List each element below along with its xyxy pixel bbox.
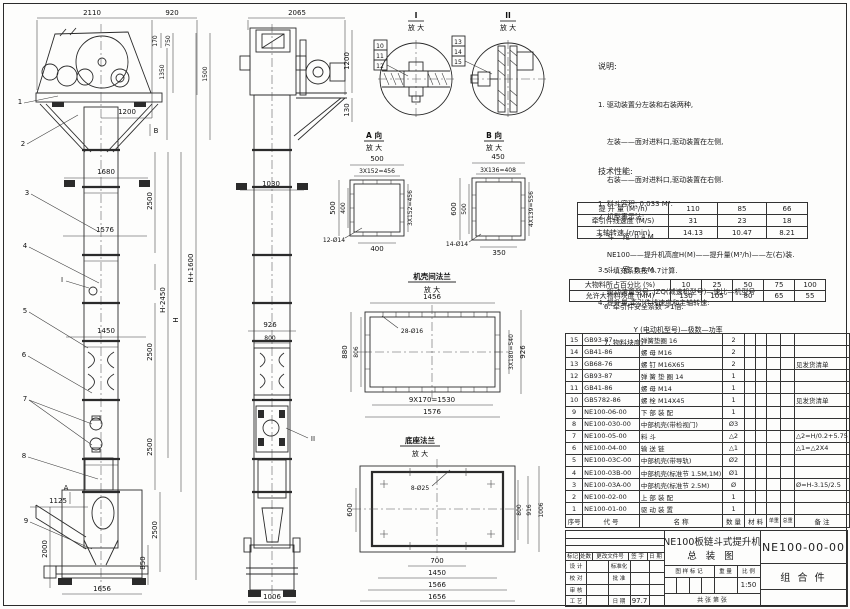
row-label: 提 升 量 (M³/h) (578, 203, 669, 215)
hole-callout: 14-Ø14 (446, 241, 468, 248)
dim-label: 1456 (423, 293, 441, 301)
tb-date-label: 日 期 (608, 595, 631, 607)
cell: 85 (718, 203, 767, 215)
detail-i-tag: 10 (376, 43, 384, 50)
scale-value: 1:50 (737, 577, 761, 594)
bom-code: GB93-87 (583, 370, 640, 382)
bom-remark (795, 406, 850, 418)
bom-row: 2NE100-02-00上 部 装 配1 (566, 491, 850, 503)
flange-title: 机壳间法兰 (413, 271, 451, 281)
cell: 65 (764, 291, 795, 302)
leader-number: 5 (23, 307, 27, 315)
dim-label: 500 (370, 155, 383, 163)
bom-header-unitweight: 单重 (767, 515, 781, 527)
bom-totalweight (781, 334, 795, 346)
dim-label: 400 (370, 245, 383, 253)
bom-header-qty: 数 量 (723, 515, 745, 527)
bom-seq: 1 (566, 503, 583, 515)
base-subtitle: 放 大 (412, 449, 428, 458)
dim-label: 880 (341, 345, 349, 358)
bom-name: 输 送 链 (639, 442, 722, 454)
bom-qty: 1 (723, 406, 745, 418)
bom-seq: 8 (566, 418, 583, 430)
bom-header-name: 名 称 (639, 515, 722, 527)
title-block: 标记 处数 更改文件号 签 字 日 期 设 计 标准化 校 对 批 准 审 核 … (565, 530, 848, 607)
dim-label: 3X152=456 (407, 190, 414, 226)
dim-label: 4X139=556 (528, 191, 535, 227)
note-line: 1. 驱动装置分左装和右装两种, (598, 99, 794, 112)
bom-remark (795, 382, 850, 394)
view-a: A 向 放 大 500 3X152=456 500 400 3X152=456 … (323, 130, 414, 253)
leader-number: 3 (25, 189, 29, 197)
leader-number: 9 (24, 517, 28, 525)
leader-number: 2 (21, 140, 25, 148)
bom-name: 弹 簧 垫 圈 14 (639, 370, 722, 382)
dim-label: 350 (492, 249, 505, 257)
bom-code: NE100-01-00 (583, 503, 640, 515)
cell: 23 (718, 215, 767, 227)
dim-label: 2065 (288, 9, 306, 17)
bom-row: 13GB68-76螺 钉 M16X652见发货清单 (566, 358, 850, 370)
cell: 10.47 (718, 227, 767, 239)
view-a-title: A 向 (366, 130, 382, 140)
dim-label: 920 (165, 9, 178, 17)
bom-unitweight (767, 334, 781, 346)
view-b: B 向 放 大 450 3X136=408 600 500 4X139=556 … (446, 130, 535, 257)
bom-remark (795, 334, 850, 346)
cell: 105 (702, 291, 733, 302)
bom-remark (795, 370, 850, 382)
drawing-views: 2110 920 170 750 1350 1500 1200 B 1680 2… (0, 0, 565, 609)
cell: 10 (671, 280, 702, 291)
table-row: 允许大物料块度 (MM) 130 105 80 65 55 (570, 291, 826, 302)
bom-remark: 见发货清单 (795, 394, 850, 406)
bom-remark: Ø=H-3.15/2.5 (795, 479, 850, 491)
bom-code: GB41-86 (583, 382, 640, 394)
bom-row: 3NE100-03A-00中部机壳(标准节 2.5M)ØØ=H-3.15/2.5 (566, 479, 850, 491)
hole-callout: 12-Ø14 (323, 237, 345, 244)
cell: 66 (767, 203, 808, 215)
detail-ii-tag: 14 (454, 49, 462, 56)
bom-row: 15GB93-87弹簧垫圈 162 (566, 334, 850, 346)
cell: 31 (669, 215, 718, 227)
bom-qty: Ø1 (723, 467, 745, 479)
dim-label: 1500 (202, 66, 209, 81)
bom-seq: 11 (566, 382, 583, 394)
dim-label: 926 (263, 321, 277, 329)
cell: 14.13 (669, 227, 718, 239)
bom-row: 10GB5782-86螺 栓 M14X451见发货清单 (566, 394, 850, 406)
dim-label: 1656 (93, 585, 111, 593)
bom-qty: 2 (723, 346, 745, 358)
bom-code: GB68-76 (583, 358, 640, 370)
dim-label: 1200 (118, 108, 136, 116)
bom-qty: Ø3 (723, 418, 745, 430)
dim-label: 1576 (423, 408, 441, 416)
detail-ii: II 放 大 13 14 15 (452, 11, 546, 118)
dim-label: H (172, 317, 180, 322)
leader-number: 6 (22, 351, 27, 359)
bom-mat (744, 334, 755, 346)
dim-label: 1576 (96, 226, 114, 234)
table-row: 大物料所占百分比 (%) 10 25 50 75 100 (570, 280, 826, 291)
notes-heading: 说明: (598, 61, 794, 74)
bom-row: 12GB93-87弹 簧 垫 圈 141 (566, 370, 850, 382)
dim-label: 600 (450, 202, 458, 215)
leader-number: 7 (23, 395, 27, 403)
row-label: 牵引件线速度 (M/S) (578, 215, 669, 227)
dim-label: 2000 (41, 540, 49, 558)
bom-qty: 2 (723, 334, 745, 346)
dim-label: 500 (461, 203, 468, 215)
table-row: 提 升 量 (M³/h) 110 85 66 (578, 203, 808, 215)
dim-label: 3X152=456 (359, 168, 395, 175)
dim-label: 800 (264, 335, 276, 342)
dim-label: H+1600 (187, 254, 195, 283)
part-type: 组 合 件 (760, 563, 848, 590)
cell: 55 (795, 291, 826, 302)
engineering-drawing-sheet: 2110 920 170 750 1350 1500 1200 B 1680 2… (0, 0, 850, 609)
bom-name: 下 部 装 配 (639, 406, 722, 418)
bom-name: 螺 栓 M14X45 (639, 394, 722, 406)
bom-remark: △1=△2X4 (795, 442, 850, 454)
bom-seq: 14 (566, 346, 583, 358)
cell: 8.21 (767, 227, 808, 239)
dim-label: 1125 (49, 497, 67, 505)
bom-seq: 6 (566, 442, 583, 454)
tb-process: 工 艺 (566, 595, 587, 607)
bom-name: 弹簧垫圈 16 (639, 334, 722, 346)
dim-label: 1680 (97, 168, 115, 176)
dim-label: 750 (165, 35, 172, 47)
view-b-subtitle: 放 大 (486, 143, 502, 152)
drawing-subtitle: 总 装 图 (687, 548, 737, 562)
bom-row: 8NE100-030-00中部机壳(带检视门)Ø3 (566, 418, 850, 430)
detail-ii-title: II (505, 11, 511, 20)
cell: 100 (795, 280, 826, 291)
bom-seq: 9 (566, 406, 583, 418)
drawing-title: NE100板链斗式提升机 (664, 534, 761, 548)
bom-qty: 1 (723, 382, 745, 394)
bom-seq: 7 (566, 430, 583, 442)
bom-seq: 13 (566, 358, 583, 370)
bom-table: 15GB93-87弹簧垫圈 162 14GB41-86螺 母 M162 13GB… (565, 333, 850, 528)
dim-label: 3X136=408 (480, 167, 516, 174)
bom-remark (795, 491, 850, 503)
dim-label: 450 (491, 153, 504, 161)
dim-label: 1450 (97, 327, 115, 335)
bom-seq: 2 (566, 491, 583, 503)
dim-label: 130 (343, 103, 351, 116)
cell: 25 (702, 280, 733, 291)
bom-row: 14GB41-86螺 母 M162 (566, 346, 850, 358)
dim-label: 2500 (151, 521, 159, 539)
bom-remark: 见发货清单 (795, 358, 850, 370)
dim-label: 916 (526, 504, 533, 516)
bom-name: 中部机壳(带检视门) (639, 418, 722, 430)
dim-label: 1200 (343, 52, 351, 70)
cell: 75 (764, 280, 795, 291)
leader-number: 4 (23, 242, 28, 250)
dim-label: H-2450 (159, 287, 167, 313)
dim-label: 926 (519, 345, 527, 359)
table-row: 牵引件线速度 (M/S) 31 23 18 (578, 215, 808, 227)
front-view-dimensions: 2110 920 170 750 1350 1500 1200 B 1680 2… (30, 9, 210, 594)
view-a-subtitle: 放 大 (366, 143, 382, 152)
dim-label: 800 (516, 504, 523, 516)
cell: 50 (733, 280, 764, 291)
detail-i: I 放 大 10 11 12 (374, 11, 454, 118)
bom-name: 料 斗 (639, 430, 722, 442)
detail-ii-subtitle: 放 大 (500, 23, 516, 32)
bom-row: 4NE100-03B-00中部机壳(标准节 1.5M,1M)Ø1 (566, 467, 850, 479)
bom-code: GB93-87 (583, 334, 640, 346)
dim-label: 2500 (146, 192, 154, 210)
bom-seq: 5 (566, 454, 583, 466)
bom-qty: 1 (723, 370, 745, 382)
bom-header-totalweight: 总重 (781, 515, 795, 527)
bom-code: NE100-03C-00 (583, 454, 640, 466)
dim-label: 2110 (83, 9, 101, 17)
bom-qty: 1 (723, 503, 745, 515)
bom-name: 中部机壳(标准节 2.5M) (639, 479, 722, 491)
dim-label: 806 (353, 346, 360, 358)
detail-i-tag: 12 (376, 63, 384, 70)
bom-row: 5NE100-03C-00中部机壳(带导轨)Ø2 (566, 454, 850, 466)
bom-seq: 4 (566, 467, 583, 479)
hole-callout: 8-Ø25 (411, 485, 430, 492)
dim-label: 2500 (146, 438, 154, 456)
bom-header-material: 材 料 (744, 515, 767, 527)
dim-label: 850 (139, 556, 147, 569)
bom-name: 上 部 装 配 (639, 491, 722, 503)
detail-i-subtitle: 放 大 (408, 23, 424, 32)
lump-size-table: 大物料所占百分比 (%) 10 25 50 75 100 允许大物料块度 (MM… (569, 279, 826, 302)
bom-row: 11GB41-86螺 母 M141 (566, 382, 850, 394)
cell: 18 (767, 215, 808, 227)
bom-name: 中部机壳(标准节 1.5M,1M) (639, 467, 722, 479)
dim-label: 500 (329, 201, 337, 214)
drawing-number: NE100-00-00 (762, 541, 845, 554)
dim-label: 2500 (146, 343, 154, 361)
dim-label: 1566 (428, 581, 446, 589)
bom-remark (795, 467, 850, 479)
detail-i-title: I (415, 11, 418, 20)
detail-i-tag: 11 (376, 53, 384, 60)
bom-name: 驱 动 装 置 (639, 503, 722, 515)
dim-label: 3X180=540 (508, 334, 515, 370)
bom-code: NE100-03A-00 (583, 479, 640, 491)
bom-qty: △2 (723, 430, 745, 442)
front-view-leaders: 1 2 3 4 5 6 7 8 9 I (18, 96, 99, 549)
bom-remark: △2=H/0.2+5.75 (795, 430, 850, 442)
bom-name: 螺 母 M14 (639, 382, 722, 394)
row-label: 主轴转速 (r/min) (578, 227, 669, 239)
bom-name: 螺 母 M16 (639, 346, 722, 358)
dim-label: 1006 (538, 502, 545, 517)
sheet-count: 共 张 第 张 (664, 593, 761, 607)
table-row: 主轴转速 (r/min) 14.13 10.47 8.21 (578, 227, 808, 239)
bom-name: 中部机壳(带导轨) (639, 454, 722, 466)
bom-name: 螺 钉 M16X65 (639, 358, 722, 370)
detail-ii-tag: 13 (454, 39, 462, 46)
detail-ii-tag: 15 (454, 59, 462, 66)
bom-header-row: 序号 代 号 名 称 数 量 材 料 单重 总重 备 注 (566, 515, 850, 527)
dim-label: 1350 (159, 64, 166, 79)
bom-code: GB5782-86 (583, 394, 640, 406)
capacity-table: 提 升 量 (M³/h) 110 85 66 牵引件线速度 (M/S) 31 2… (577, 202, 808, 239)
cell: 80 (733, 291, 764, 302)
bom-qty: 1 (723, 491, 745, 503)
bom-row: 9NE100-06-00下 部 装 配1 (566, 406, 850, 418)
dim-label: 600 (346, 503, 354, 516)
bom-seq: 12 (566, 370, 583, 382)
bom-qty: 2 (723, 358, 745, 370)
leader-number: 1 (18, 98, 22, 106)
bom-code: NE100-06-00 (583, 406, 640, 418)
row-label: 允许大物料块度 (MM) (570, 291, 671, 302)
cell: 110 (669, 203, 718, 215)
hole-callout: 28-Ø16 (401, 328, 423, 335)
bom-seq: 3 (566, 479, 583, 491)
bom-remark (795, 346, 850, 358)
section-marker-i: I (61, 276, 63, 284)
casing-flange-detail: 机壳间法兰 放 大 1456 28-Ø16 880 806 3X180=540 … (341, 271, 527, 417)
bom-qty: 1 (723, 394, 745, 406)
bom-qty: Ø2 (723, 454, 745, 466)
dim-label: 1030 (262, 180, 280, 188)
view-marker-a: A (64, 484, 69, 492)
bom-code: NE100-04-00 (583, 442, 640, 454)
bom-row: 1NE100-01-00驱 动 装 置1 (566, 503, 850, 515)
front-view-head (36, 28, 162, 152)
dim-label: 9X170=1530 (409, 396, 455, 404)
bom-code: NE100-02-00 (583, 491, 640, 503)
dim-label: 700 (430, 557, 443, 565)
dim-label: 1656 (428, 593, 446, 601)
bom-qty: △1 (723, 442, 745, 454)
section-marker-ii: II (311, 435, 315, 443)
view-marker-b: B (154, 127, 159, 135)
bom-seq: 15 (566, 334, 583, 346)
performance-heading: 技术性能: (598, 166, 710, 177)
bom-code: NE100-03B-00 (583, 467, 640, 479)
bom-row: 6NE100-04-00输 送 链△1△1=△2X4 (566, 442, 850, 454)
base-title: 底座法兰 (405, 435, 435, 445)
perf-line: 6. 牵引件安全系数 >1倍. (604, 301, 684, 313)
bom-remark (795, 418, 850, 430)
bom-header-code: 代 号 (583, 515, 640, 527)
bom-seq: 10 (566, 394, 583, 406)
base-flange-detail: 底座法兰 放 大 8-Ø25 600 800 916 1006 700 1450… (346, 435, 545, 601)
leader-number: 8 (22, 452, 26, 460)
bom-code: GB41-86 (583, 346, 640, 358)
view-b-title: B 向 (486, 130, 502, 140)
bom-code: NE100-030-00 (583, 418, 640, 430)
bom-row: 7NE100-05-00料 斗△2△2=H/0.2+5.75 (566, 430, 850, 442)
bom-header-seq: 序号 (566, 515, 583, 527)
cell: 130 (671, 291, 702, 302)
perf-line: 5. 填充系数按 0.7计算. (604, 265, 684, 277)
row-label: 大物料所占百分比 (%) (570, 280, 671, 291)
bom-remark (795, 454, 850, 466)
side-view (236, 24, 347, 600)
bom-remark (795, 503, 850, 515)
dim-label: 170 (152, 35, 159, 47)
bom-header-remark: 备 注 (795, 515, 850, 527)
bom-code: NE100-05-00 (583, 430, 640, 442)
dim-label: 1450 (428, 569, 446, 577)
tb-date-value: 97.7 (630, 595, 650, 607)
bom-qty: Ø (723, 479, 745, 491)
dim-label: 400 (340, 202, 347, 214)
bom-mat (756, 334, 767, 346)
dim-label: 1006 (263, 593, 281, 601)
